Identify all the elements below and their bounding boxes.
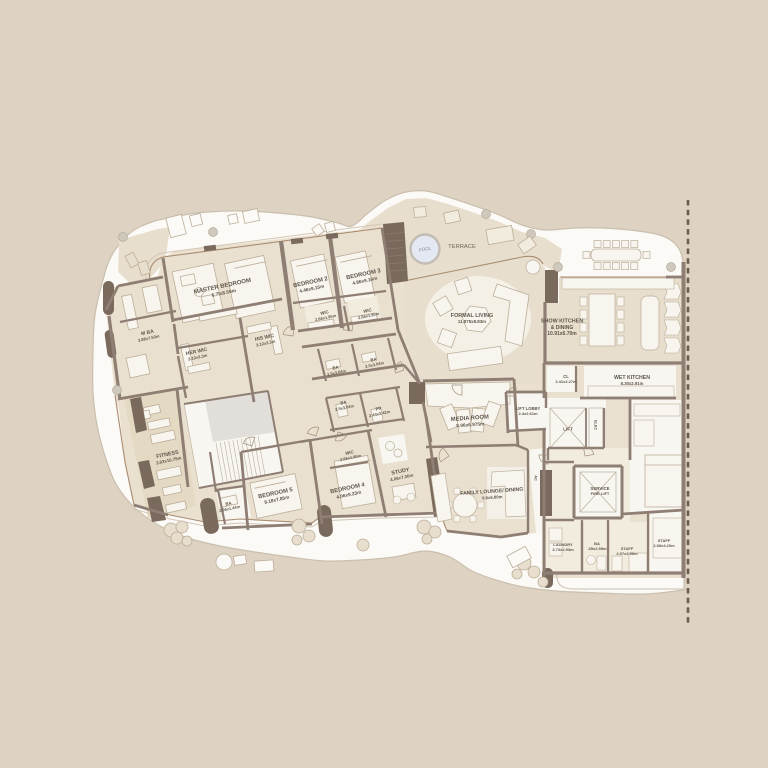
svg-text:AC: AC <box>534 475 538 481</box>
svg-text:FORMAL LIVING: FORMAL LIVING <box>451 313 493 319</box>
svg-text:ELEC: ELEC <box>594 420 598 430</box>
svg-text:2.97x2.96m: 2.97x2.96m <box>616 551 638 556</box>
svg-text:FIRE LIFT: FIRE LIFT <box>591 491 610 496</box>
svg-text:TERRACE: TERRACE <box>448 244 476 250</box>
svg-text:3.73x2.93m: 3.73x2.93m <box>552 547 574 552</box>
svg-text:.35x2.95m: .35x2.95m <box>587 546 607 551</box>
svg-text:11.875x8.83m: 11.875x8.83m <box>458 319 486 324</box>
svg-text:LIFT: LIFT <box>563 427 573 432</box>
svg-text:2.41x2.27m: 2.41x2.27m <box>555 379 577 384</box>
svg-text:8.30x2.91m: 8.30x2.91m <box>621 381 644 386</box>
svg-text:2.4x2.61m: 2.4x2.61m <box>518 411 538 416</box>
svg-text:SHOW KITCHEN: SHOW KITCHEN <box>541 319 583 325</box>
svg-text:10.91x6.70m: 10.91x6.70m <box>547 331 577 337</box>
svg-text:& DINING: & DINING <box>551 325 574 331</box>
svg-text:2.68x4.20m: 2.68x4.20m <box>653 543 675 548</box>
